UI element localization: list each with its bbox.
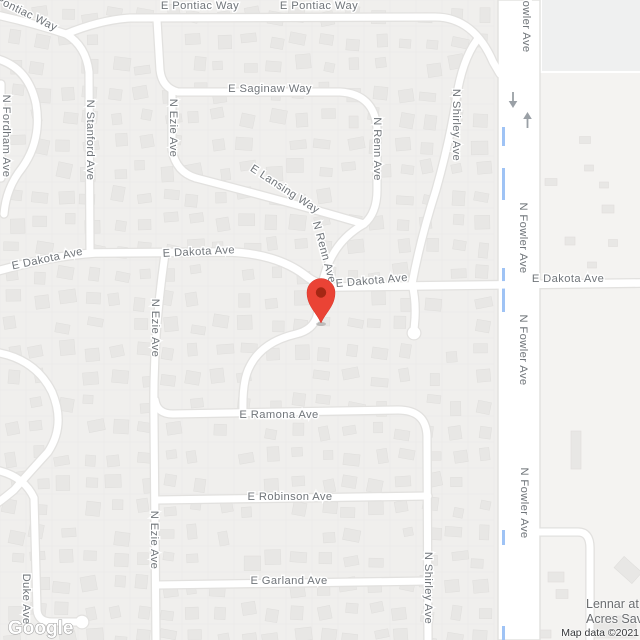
poi-label-line1: Lennar at xyxy=(586,597,640,612)
street-label: E Garland Ave xyxy=(250,575,327,587)
street-label: N Fowler Ave xyxy=(517,314,529,385)
street-label: N Renn Ave xyxy=(371,117,383,181)
map-svg[interactable]: E Pontiac WayE Pontiac WayE Pontiac WayE… xyxy=(0,0,640,640)
street-label: E Ramona Ave xyxy=(239,409,318,421)
street-label: E Pontiac Way xyxy=(161,0,239,12)
street-label: N Shirley Ave xyxy=(450,89,462,161)
map-attribution: Map data ©2021 xyxy=(561,627,639,639)
street-label: E Dakota Ave xyxy=(532,273,604,285)
google-logo[interactable]: Google xyxy=(8,618,73,639)
street-label: Duke Ave xyxy=(20,574,32,625)
street-label: N Fowler Ave xyxy=(518,467,530,538)
map-canvas[interactable]: E Pontiac WayE Pontiac WayE Pontiac WayE… xyxy=(0,0,640,640)
street-label: N Fowler Ave xyxy=(517,202,529,273)
poi-label-line2: Acres Sav xyxy=(586,612,640,627)
street-label: N Fowler Ave xyxy=(520,0,532,53)
street-label: N Stanford Ave xyxy=(84,100,96,181)
street-label: N Shirley Ave xyxy=(422,552,434,624)
street-label: E Robinson Ave xyxy=(247,491,332,503)
street-label: N Ezie Ave xyxy=(149,299,161,358)
street-label: E Saginaw Way xyxy=(228,83,312,95)
street-label: N Ezie Ave xyxy=(167,99,179,158)
street-label: N Fordham Ave xyxy=(0,95,12,178)
street-label: E Pontiac Way xyxy=(280,0,358,12)
street-label: N Ezie Ave xyxy=(148,511,160,570)
poi-label-lennar: Lennar at Acres Sav xyxy=(586,597,640,626)
